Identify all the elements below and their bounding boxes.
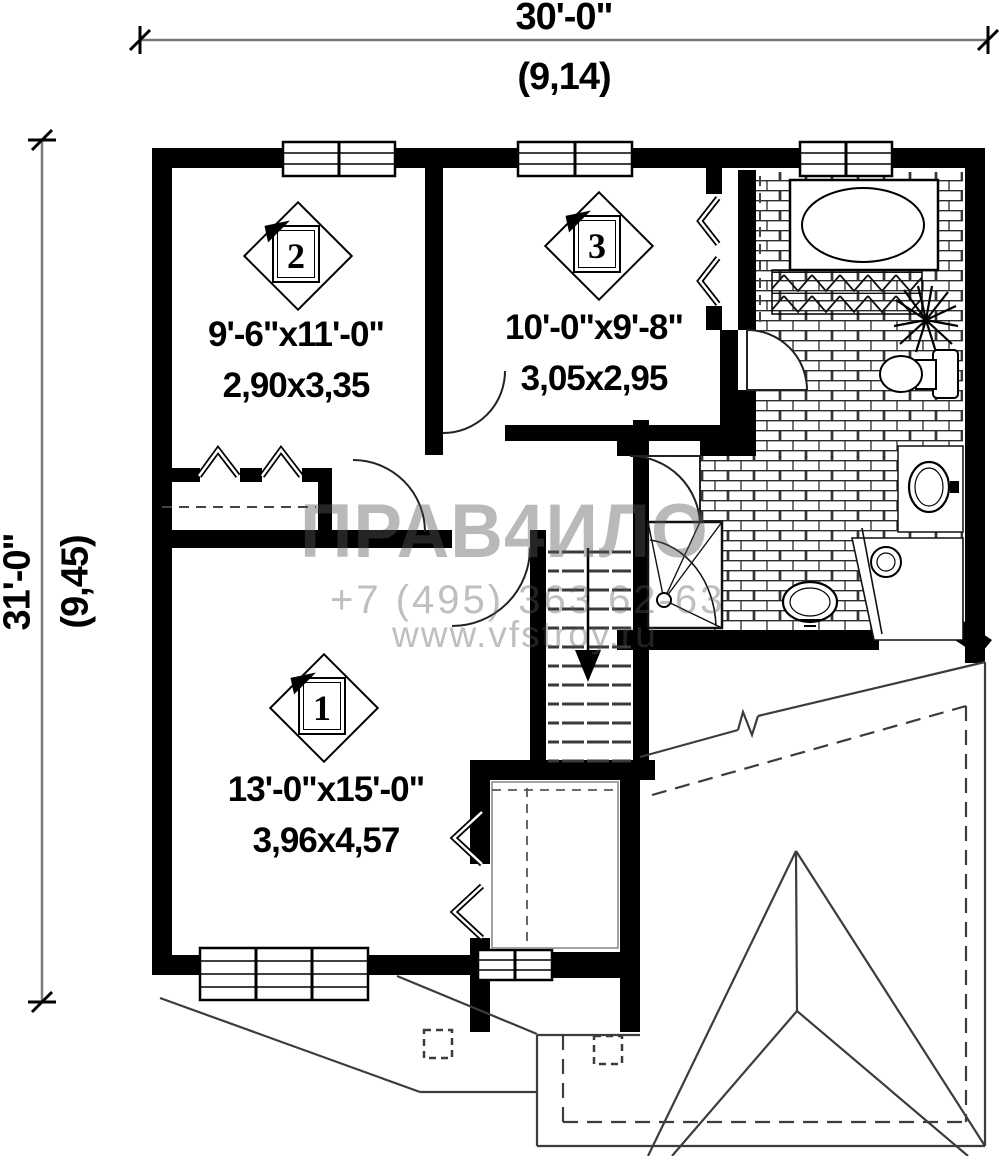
dimension-left-meters: (9,45) (55, 535, 98, 628)
watermark-brand: ПРАВ4ИЛО (300, 488, 709, 575)
window-top-right-icon (800, 142, 892, 176)
room-2-size-label: 9'-6"x11'-0" 2,90x3,35 (208, 310, 384, 412)
room-number: 3 (575, 225, 619, 267)
room-3-size-label: 10'-0"x9'-8" 3,05x2,95 (505, 303, 683, 405)
room-number: 2 (274, 235, 318, 277)
room-1-size-imperial: 13'-0"x15'-0" (228, 765, 424, 816)
room-number: 1 (300, 687, 344, 729)
break-symbol (738, 712, 758, 735)
bath-mat-icon (772, 270, 922, 314)
entry-door-chevron (454, 886, 482, 938)
porch-column-dashed (424, 1030, 452, 1058)
dimension-left-feet: 31'-0" (0, 533, 40, 630)
dimension-top-meters: (9,14) (517, 56, 610, 99)
sink-icon (898, 446, 963, 532)
room-2-size-metric: 2,90x3,35 (208, 361, 384, 412)
porch-column-dashed (594, 1036, 622, 1064)
room-3-size-metric: 3,05x2,95 (505, 354, 683, 405)
room-number-badge-2: 2 (244, 202, 348, 306)
room-2-size-imperial: 9'-6"x11'-0" (208, 310, 384, 361)
room-3-size-imperial: 10'-0"x9'-8" (505, 303, 683, 354)
roof-hip-lines (648, 851, 985, 1156)
room-number-badge-1: 1 (270, 654, 374, 758)
dimension-top-feet: 30'-0" (515, 0, 612, 39)
window-top-middle-icon (518, 142, 632, 176)
room-number-badge-3: 3 (545, 192, 649, 296)
bathtub-icon (790, 180, 938, 270)
floor-plan-page: 30'-0" (9,14) 31'-0" (9,45) 2 3 1 9'-6"x… (0, 0, 1000, 1156)
window-vestibule-icon (478, 950, 552, 980)
watermark-website: www.vfstroy.ru (392, 614, 658, 656)
window-bottom-icon (200, 948, 368, 1000)
window-top-left-icon (283, 142, 395, 176)
room-1-size-metric: 3,96x4,57 (228, 816, 424, 867)
roof-edge-diagonal (640, 662, 985, 757)
vestibule-interior (492, 782, 618, 948)
room-1-size-label: 13'-0"x15'-0" 3,96x4,57 (228, 765, 424, 867)
door-room3 (443, 371, 505, 433)
